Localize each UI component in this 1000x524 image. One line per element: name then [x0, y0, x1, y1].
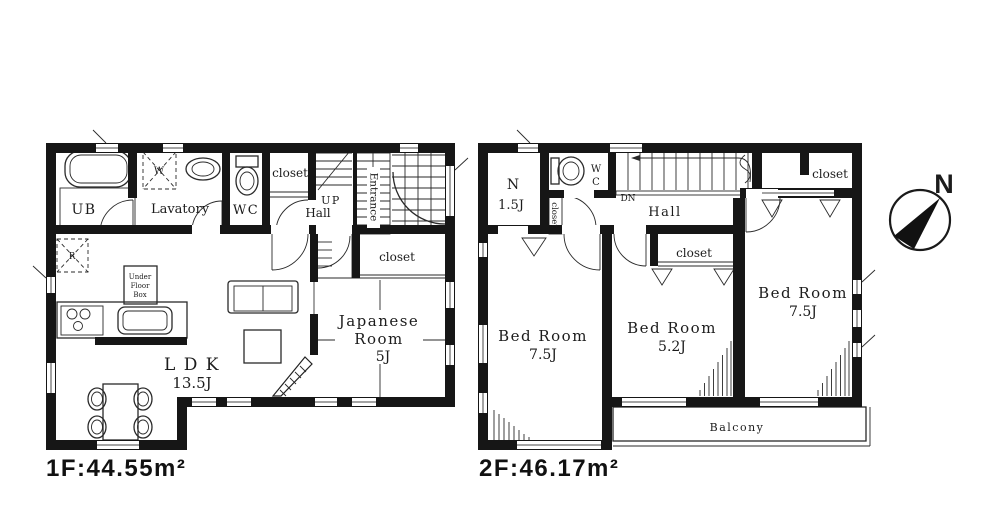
label-bedroom2-size: 5.2J: [658, 339, 686, 355]
label-ldk: L D K: [164, 355, 220, 375]
label-closet-top-right: closet: [812, 167, 848, 181]
label-closet-top-1f: closet: [272, 166, 308, 180]
label-n-room: N: [507, 177, 519, 193]
closet-mid-front: [658, 262, 733, 266]
label-bedroom2: Bed Room: [627, 319, 717, 337]
label-wc-2f-w: W: [591, 164, 602, 175]
label-hall-2f: Hall: [648, 205, 681, 220]
dining-table: [88, 384, 152, 440]
label-bedroom1-size: 7.5J: [529, 347, 557, 363]
label-bedroom3-size: 7.5J: [789, 304, 817, 320]
label-japanese-room-1: Japanese: [337, 312, 420, 330]
label-ufb-3: Box: [133, 291, 146, 299]
label-washer: W: [154, 166, 165, 177]
label-closet-jr: closet: [379, 250, 415, 264]
label-japanese-room-3: 5J: [376, 349, 391, 365]
label-japanese-room-2: Room: [354, 330, 404, 348]
floorplan-drawing: UB W Lavatory WC closet UP Hall Entrance…: [0, 0, 1000, 524]
label-bedroom3: Bed Room: [758, 284, 848, 302]
label-lavatory: Lavatory: [151, 202, 210, 217]
label-entrance: Entrance: [367, 173, 379, 222]
closet-front-1f: [270, 192, 308, 197]
floorplan-2f: N 1.5J W C closet DN Hall closet closet …: [478, 130, 875, 482]
label-dn: DN: [620, 194, 635, 204]
label-closet-mid: closet: [676, 246, 712, 260]
compass-north-label: N: [934, 169, 954, 199]
toilet-1f: [236, 156, 258, 195]
coffee-table: [244, 330, 281, 363]
area-label-1f: 1F:44.55m²: [46, 455, 186, 482]
label-ub: UB: [71, 202, 96, 218]
label-closet-side: closet: [549, 202, 559, 228]
label-ufb-1: Under: [129, 273, 152, 281]
label-balcony: Balcony: [710, 421, 765, 434]
labels-2f: N 1.5J W C closet DN Hall closet closet …: [479, 164, 848, 482]
stairs-down: [616, 152, 752, 195]
label-bedroom1: Bed Room: [498, 327, 588, 345]
label-wc-2f-c: C: [592, 177, 600, 188]
label-n-room-size: 1.5J: [498, 198, 524, 213]
label-ldk-size: 13.5J: [172, 374, 211, 392]
floorplan-1f: UB W Lavatory WC closet UP Hall Entrance…: [33, 130, 468, 482]
area-label-2f: 2F:46.17m²: [479, 455, 619, 482]
label-fridge: R: [69, 252, 76, 262]
lavatory-sink: [186, 158, 220, 180]
compass-north-icon: N: [890, 169, 954, 250]
sofa: [228, 281, 298, 313]
label-hall-1f: Hall: [305, 206, 330, 220]
kitchen-counter: [57, 302, 187, 338]
toilet-2f: [551, 157, 584, 185]
label-ufb-2: Floor: [131, 282, 151, 290]
label-wc-1f: WC: [233, 203, 259, 218]
genkan-tiles: [392, 144, 445, 234]
floorplan-page: UB W Lavatory WC closet UP Hall Entrance…: [0, 0, 1000, 524]
